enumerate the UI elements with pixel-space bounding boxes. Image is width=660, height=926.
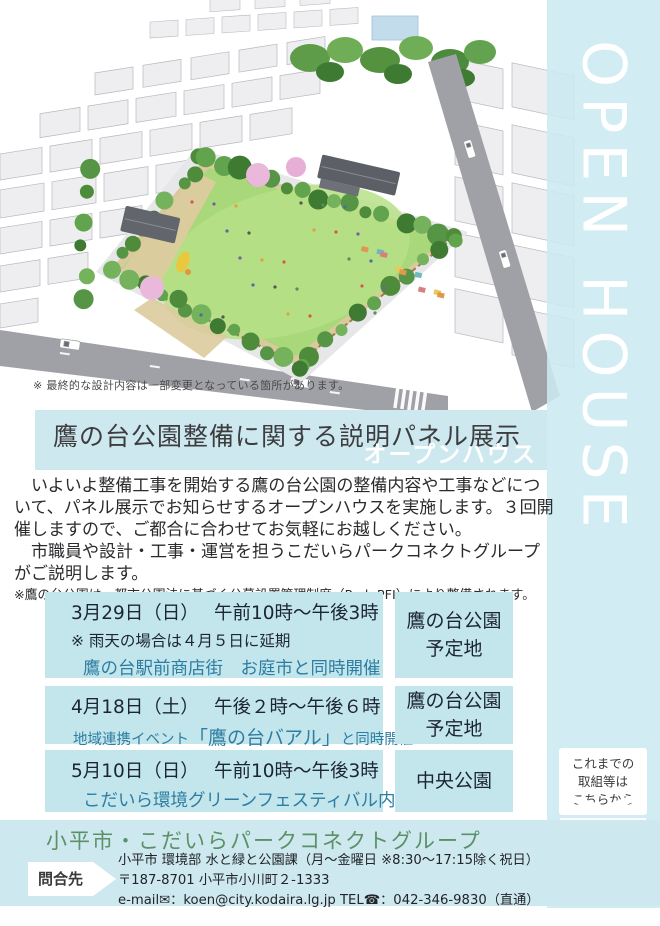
park-rendering-illustration — [0, 0, 585, 420]
open-house-vertical-text: OPEN HOUSE — [574, 40, 634, 538]
schedule-event-3: こだいら環境グリーンフェスティバル内 — [71, 787, 383, 812]
schedule-date-3: 5月10日（日） 午前10時～午後3時 — [71, 757, 383, 783]
chevron-down-icon — [559, 793, 647, 815]
link-note-line: これまでの — [572, 756, 635, 771]
design-change-note: ※ 最終的な設計内容は一部変更となっている箇所があります。 — [33, 377, 349, 393]
open-house-subtitle: オープンハウス — [363, 435, 537, 469]
contact-department: 小平市 環境部 水と緑と公園課（月～金曜日 ※8:30～17:15除く祝日） — [118, 851, 539, 871]
event-emphasis: 「鷹の台バアル」 — [189, 727, 341, 749]
schedule-event-1: 鷹の台駅前商店街 お庭市と同時開催 — [71, 655, 383, 680]
flyer-page: ※ 最終的な設計内容は一部変更となっている箇所があります。 OPEN HOUSE… — [0, 0, 660, 926]
schedule-date-2: 4月18日（土） 午後２時～午後６時 — [71, 693, 383, 719]
location-line: 鷹の台公園 — [406, 687, 501, 716]
schedule-row-1: 3月29日（日） 午前10時～午後3時 ※ 雨天の場合は４月５日に延期 鷹の台駅… — [45, 592, 383, 678]
schedule-row-3: 5月10日（日） 午前10時～午後3時 こだいら環境グリーンフェスティバル内 — [45, 750, 383, 812]
intro-text: いよいよ整備工事を開始する鷹の台公園の整備内容や工事などについて、パネル展示でお… — [14, 475, 554, 605]
side-banner: OPEN HOUSE これまでの 取組等は こちらから — [547, 0, 660, 908]
contact-info: 小平市 環境部 水と緑と公園課（月～金曜日 ※8:30～17:15除く祝日） 〒… — [118, 851, 539, 910]
intro-paragraph-1: いよいよ整備工事を開始する鷹の台公園の整備内容や工事などについて、パネル展示でお… — [14, 475, 554, 541]
location-line: 鷹の台公園 — [406, 607, 501, 636]
schedule-event-2: 地域連携イベント「鷹の台バアル」と同時開催 — [71, 723, 383, 750]
contact-label: 問合先 — [28, 862, 93, 896]
contact-email-phone: e-mail✉：koen@city.kodaira.lg.jp TEL☎：042… — [118, 891, 539, 911]
schedule-location-1: 鷹の台公園 予定地 — [395, 592, 513, 678]
contact-label-arrow: 問合先 — [28, 862, 116, 896]
footer-band: 小平市・こだいらパークコネクトグループ 問合先 小平市 環境部 水と緑と公園課（… — [0, 820, 660, 906]
schedule-rain-note-1: ※ 雨天の場合は４月５日に延期 — [71, 629, 383, 651]
event-prefix: 地域連携イベント — [73, 732, 189, 748]
location-line: 予定地 — [425, 635, 482, 664]
schedule-date-1: 3月29日（日） 午前10時～午後3時 — [71, 599, 383, 625]
schedule-location-2: 鷹の台公園 予定地 — [395, 686, 513, 744]
contact-address: 〒187-8701 小平市小川町２-1333 — [118, 871, 539, 891]
schedule-row-2: 4月18日（土） 午後２時～午後６時 地域連携イベント「鷹の台バアル」と同時開催 — [45, 686, 383, 744]
intro-paragraph-2: 市職員や設計・工事・運営を担うこだいらパークコネクトグループがご説明します。 — [14, 541, 554, 585]
location-line: 予定地 — [425, 715, 482, 744]
schedule-location-3: 中央公園 — [395, 750, 513, 812]
link-note-line: 取組等は — [578, 774, 628, 789]
title-band: 鷹の台公園整備に関する説明パネル展示 オープンハウス — [35, 410, 547, 470]
location-line: 中央公園 — [416, 767, 492, 796]
